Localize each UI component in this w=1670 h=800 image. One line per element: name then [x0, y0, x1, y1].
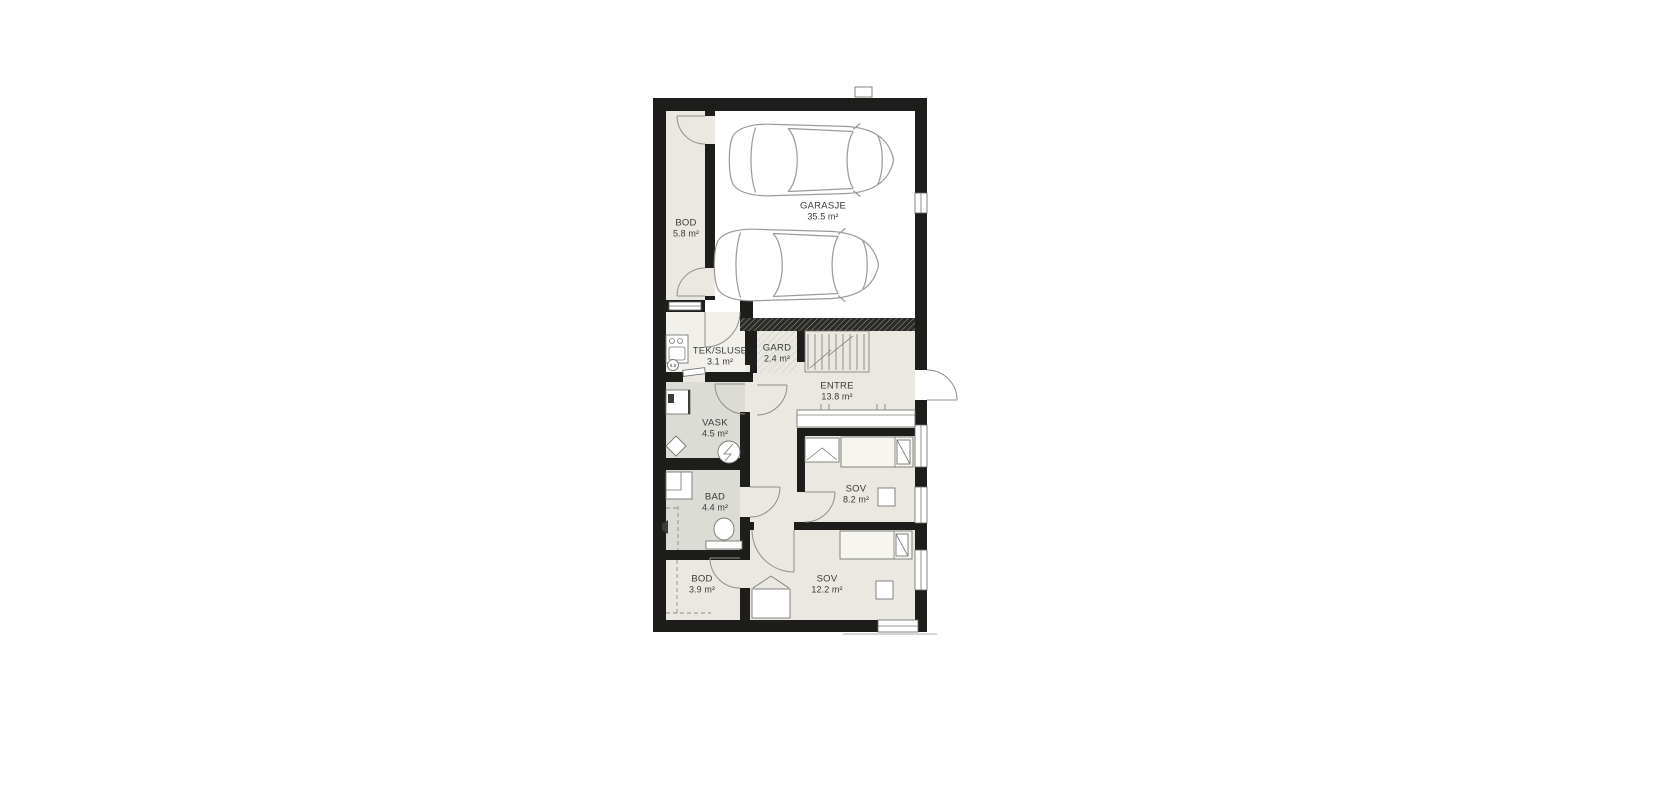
car-top [729, 123, 893, 196]
room-label-sov-large: SOV 12.2 m² [811, 574, 842, 595]
car-bottom [714, 228, 878, 301]
room-label-bad: BAD 4.4 m² [702, 492, 728, 513]
floorplan-canvas: 8.8 [0, 0, 1670, 800]
room-label-entre: ENTRE 13.8 m² [820, 381, 853, 402]
garage-separation-wall [740, 318, 915, 331]
room-label-bod-top: BOD 5.8 m² [673, 218, 699, 239]
room-label-garasje: GARASJE 35.5 m² [800, 201, 846, 222]
room-label-vask: VASK 4.5 m² [702, 418, 728, 439]
room-label-sluse: TEK/SLUSE 3.1 m² [693, 346, 748, 367]
room-label-sov-small: SOV 8.2 m² [843, 484, 869, 505]
marker-label: 8.8 [670, 363, 677, 368]
room-label-bod-bottom: BOD 3.9 m² [689, 574, 715, 595]
floorplan: 8.8 [653, 98, 927, 632]
room-label-gard: GARD 2.4 m² [763, 343, 791, 364]
